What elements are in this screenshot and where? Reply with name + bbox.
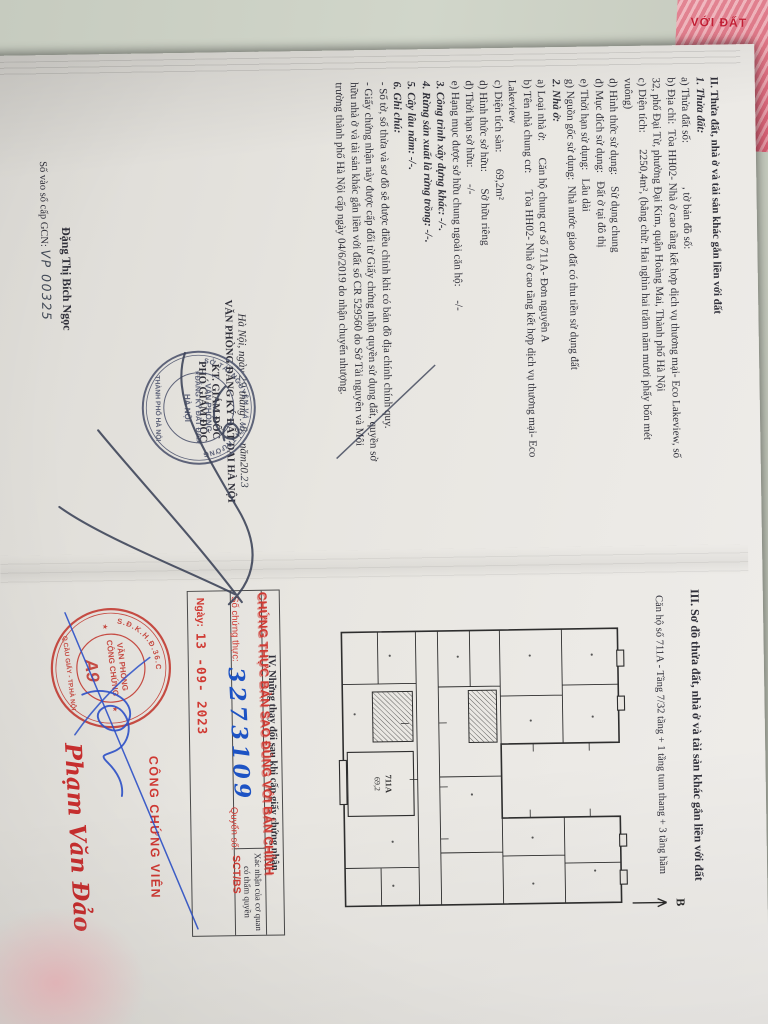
floor-plan: 711A 69,2 <box>333 624 633 911</box>
north-arrow: B <box>626 885 688 920</box>
notary-role: CÔNG CHỨNG VIÊN <box>146 738 163 916</box>
north-label: B <box>672 885 688 919</box>
certify-date-value: 13 -09- 2023 <box>193 633 210 736</box>
notary-name: Phạm Văn Đảo <box>59 742 95 915</box>
certify-book-label: Quyển số: <box>228 807 240 850</box>
certify-date-label: Ngày: <box>194 598 206 627</box>
certify-stamp-number-row: Số chứng thực: 3273109 Quyển số: SCT/BS <box>224 596 255 894</box>
signer-name: Đặng Thị Bích Ngọc <box>58 217 75 341</box>
section2-block: II. Thửa đất, nhà ở và tài sản khác gắn … <box>332 76 727 463</box>
section3-title: III. Sơ đồ thửa đất, nhà ở và tài sản kh… <box>686 549 707 921</box>
svg-text:★: ★ <box>110 706 119 713</box>
certify-no-value: 3273109 <box>223 666 256 802</box>
apartment-summary-line: Căn hộ số 711A - Tầng 7/32 tầng + 1 tầng… <box>652 545 669 923</box>
north-arrow-icon <box>631 896 673 909</box>
handwritten-year: 23 <box>238 476 250 489</box>
photo-background: VỚI ĐẤT II. Thửa đất, nhà ở và tài sản k… <box>0 0 768 1024</box>
plan-unit-label: 711A <box>384 775 394 794</box>
svg-text:VĂN PHÒNG: VĂN PHÒNG <box>203 383 213 432</box>
svg-text:HÀ NỘI: HÀ NỘI <box>183 394 192 422</box>
notary-round-stamp-icon: S.Đ.K.H.Đ.36.C Q.CẦU GIẤY - TP.HÀ NỘI ★ … <box>41 598 181 738</box>
gcn-label: Số vào sổ cấp GCN: <box>37 161 49 247</box>
certificate-page: II. Thửa đất, nhà ở và tài sản khác gắn … <box>0 44 768 1024</box>
cover-title-fragment: VỚI ĐẤT <box>690 15 747 30</box>
certify-stamp-date-row: Ngày: 13 -09- 2023 <box>193 598 210 736</box>
page-stack-edges <box>0 50 741 78</box>
certify-book-value: SCT/BS <box>230 855 243 894</box>
document-content: II. Thửa đất, nhà ở và tài sản khác gắn … <box>0 48 755 1024</box>
gcn-number-line: Số vào sổ cấp GCN: VP 00325 <box>37 161 55 321</box>
svg-text:★: ★ <box>101 623 110 630</box>
certify-no-label: Số chứng thực: <box>229 596 241 662</box>
svg-text:A9: A9 <box>81 657 104 683</box>
registry-round-stamp-icon: SỞ TÀI NGUYÊN VÀ MÔI TRƯỜNG THÀNH PHỐ HÀ… <box>137 346 261 470</box>
plan-unit-area: 69,2 <box>373 777 382 791</box>
gcn-value-handwritten: VP 00325 <box>38 249 54 321</box>
svg-text:THÀNH PHỐ HÀ NỘI: THÀNH PHỐ HÀ NỘI <box>153 375 164 441</box>
page-fold-seam <box>0 544 748 586</box>
